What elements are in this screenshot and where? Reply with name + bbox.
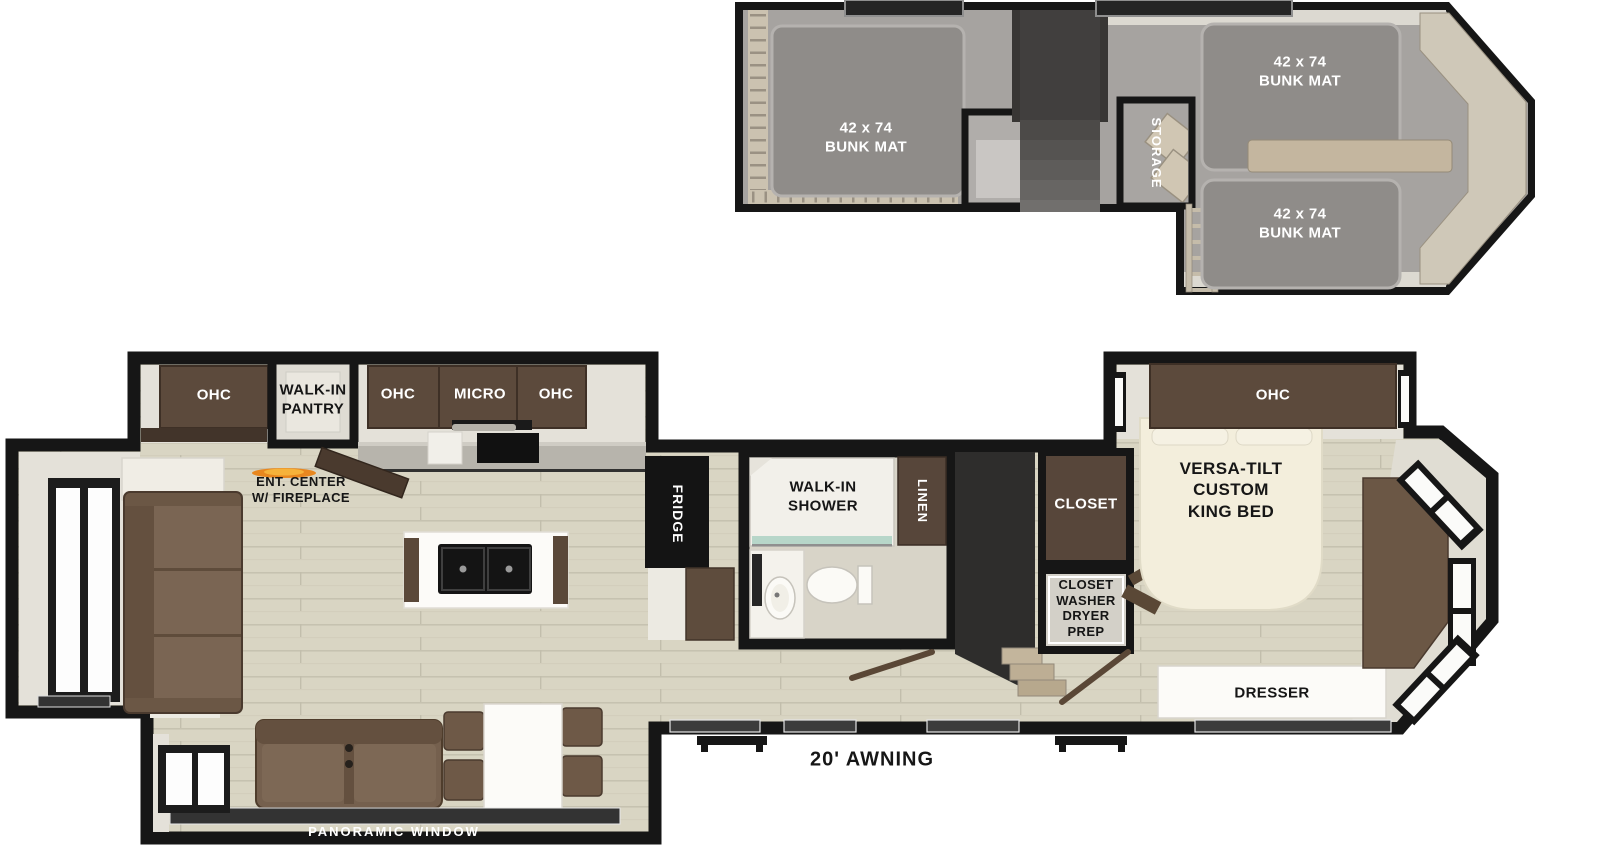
toilet	[807, 566, 872, 604]
dinette-chair	[562, 708, 602, 746]
cupholder	[345, 744, 353, 752]
pillow	[1152, 428, 1228, 445]
faucet	[460, 566, 467, 573]
dinette-chair	[562, 756, 602, 796]
sofa	[124, 492, 242, 713]
skylight-left	[845, 0, 963, 16]
bedroom-slide-window-right	[1398, 370, 1412, 428]
ohc-living-label: OHC	[197, 387, 232, 406]
theater-seating	[256, 720, 442, 808]
dinette-table	[484, 704, 562, 812]
panoramic-window-label: PANORAMIC WINDOW	[308, 824, 480, 840]
mirror	[752, 554, 762, 606]
rv-floorplan-page: 42 x 74 BUNK MAT 42 x 74 BUNK MAT 42 x 7…	[0, 0, 1600, 849]
kitchen-island	[404, 532, 568, 608]
linen-label: LINEN	[914, 479, 930, 523]
walk-in-pantry-label: WALK-IN PANTRY	[280, 381, 347, 419]
panoramic-window-glass	[170, 808, 620, 824]
bunk-mat-bottom-right-label: 42 x 74 BUNK MAT	[1259, 205, 1341, 243]
ent-center-label: ENT. CENTER W/ FIREPLACE	[252, 474, 350, 507]
loft-nose-table	[1248, 140, 1452, 172]
dinette-chair	[444, 712, 484, 750]
ohc-kitchen-right-label: OHC	[539, 386, 574, 405]
dinette-chair	[444, 760, 484, 800]
floorplan-drawing	[0, 0, 1600, 849]
range-hood	[452, 424, 516, 431]
ohc-bedroom-label: OHC	[1256, 387, 1291, 406]
bunk-mat-left	[772, 26, 964, 196]
bunk-mat-top-right-label: 42 x 74 BUNK MAT	[1259, 53, 1341, 91]
awning-label: 20' AWNING	[810, 748, 934, 773]
cabinet-below-fridge	[686, 568, 734, 640]
pillow	[1236, 428, 1312, 445]
dresser-label: DRESSER	[1234, 685, 1309, 704]
washer-dryer-prep-label: CLOSET WASHER DRYER PREP	[1056, 577, 1115, 639]
ohc-kitchen-left-label: OHC	[381, 386, 416, 405]
bedroom-slide-window-left	[1112, 372, 1126, 432]
main-floor-plan	[12, 358, 1492, 838]
rear-windows	[38, 478, 120, 707]
skylight-right	[1096, 0, 1292, 16]
faucet	[506, 566, 513, 573]
king-bed-label: VERSA-TILT CUSTOM KING BED	[1180, 458, 1283, 522]
closet-label: CLOSET	[1054, 496, 1117, 515]
cupholder	[345, 760, 353, 768]
loft-stairs	[1012, 10, 1108, 212]
bathroom-vanity	[750, 550, 804, 638]
slide-window-left	[158, 745, 230, 813]
walk-in-shower-label: WALK-IN SHOWER	[788, 478, 858, 516]
fridge-label: FRIDGE	[668, 485, 686, 544]
cooktop	[477, 433, 539, 463]
bunk-mat-left-label: 42 x 74 BUNK MAT	[825, 119, 907, 157]
storage-label: STORAGE	[1148, 117, 1164, 188]
micro-label: MICRO	[454, 386, 506, 405]
